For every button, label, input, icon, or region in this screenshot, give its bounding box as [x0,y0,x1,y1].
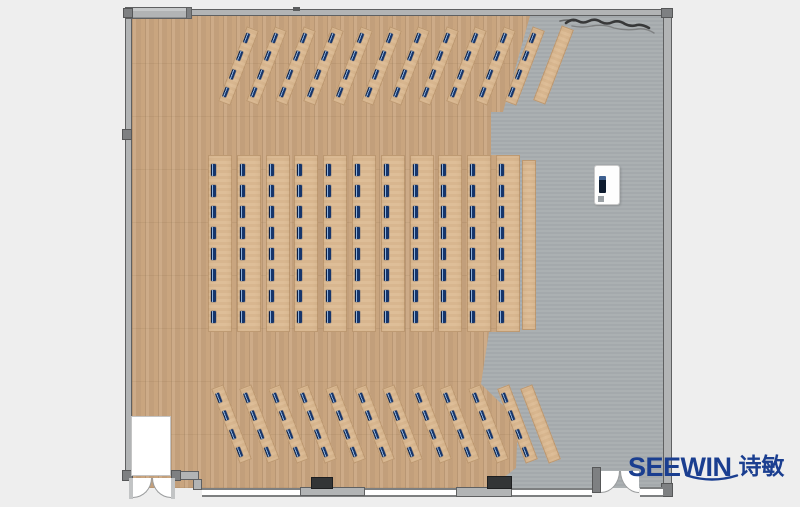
seat-marker [269,311,274,323]
seat-marker [257,69,264,80]
seat-marker [413,290,418,302]
seat-marker [471,33,478,44]
seat-marker [264,447,271,458]
seat-marker [321,51,328,62]
seat-marker [355,311,360,323]
seat-marker [222,410,229,421]
seat-marker [486,69,493,80]
seat-marker [528,33,535,44]
seat-marker [269,227,274,239]
seat-marker [415,392,422,403]
seat-marker [343,429,350,440]
desk-strip [496,155,520,332]
seat-marker [211,311,216,323]
desk-strip [237,155,261,332]
seat-marker [240,311,245,323]
seat-marker [243,392,250,403]
seat-marker [314,69,321,80]
seat-marker [413,185,418,197]
seat-marker [457,429,464,440]
seat-marker [350,447,357,458]
seat-marker [441,269,446,281]
seat-marker [429,429,436,440]
seat-marker [470,164,475,176]
seat-marker [269,248,274,260]
seat-marker [384,269,389,281]
seat-marker [228,429,235,440]
seat-marker [269,290,274,302]
equipment-screen [599,176,606,193]
seat-marker [293,51,300,62]
seat-marker [441,164,446,176]
seat-marker [269,185,274,197]
seat-marker [279,87,286,98]
seat-marker [486,429,493,440]
seat-marker [450,87,457,98]
seat-marker [269,269,274,281]
seat-marker [328,33,335,44]
seat-marker [400,69,407,80]
seat-marker [384,248,389,260]
seat-marker [400,429,407,440]
seat-marker [250,410,257,421]
seat-marker [222,87,229,98]
desk-layer [0,0,800,507]
seat-marker [414,33,421,44]
seat-marker [297,269,302,281]
brand-logo: SEEWIN诗敏 [628,447,793,489]
seat-marker [326,290,331,302]
seat-marker [508,87,515,98]
seat-marker [326,311,331,323]
seat-marker [413,248,418,260]
seat-marker [393,410,400,421]
seat-marker [358,392,365,403]
seat-marker [499,311,504,323]
seat-marker [499,185,504,197]
desk-strip [438,155,462,332]
seat-marker [297,290,302,302]
seat-marker [307,410,314,421]
seat-marker [365,87,372,98]
seat-marker [242,33,249,44]
seat-marker [229,69,236,80]
seat-marker [350,51,357,62]
seat-marker [499,227,504,239]
equipment-cart [594,165,620,205]
seat-marker [436,51,443,62]
seat-marker [297,227,302,239]
desk-strip [208,155,232,332]
seat-marker [407,51,414,62]
seat-marker [293,447,300,458]
seat-marker [515,69,522,80]
seat-marker [297,206,302,218]
seat-marker [297,185,302,197]
seat-marker [372,69,379,80]
seat-marker [264,51,271,62]
seat-marker [508,410,515,421]
desk-strip [294,155,318,332]
seat-marker [443,392,450,403]
seat-marker [326,227,331,239]
brand-logo-chinese: 诗敏 [739,453,785,479]
seat-marker [326,185,331,197]
seat-marker [326,269,331,281]
seat-marker [211,248,216,260]
seat-marker [493,447,500,458]
seat-marker [470,248,475,260]
seat-marker [441,185,446,197]
door-jamb-right [171,478,175,499]
seat-marker [307,87,314,98]
seat-marker [215,392,222,403]
scribble-mark [558,12,663,39]
seat-marker [343,69,350,80]
seat-marker [297,311,302,323]
seat-marker [240,206,245,218]
seat-marker [211,185,216,197]
seat-marker [300,33,307,44]
seat-marker [470,269,475,281]
seat-marker [384,164,389,176]
seat-marker [240,164,245,176]
seat-marker [470,227,475,239]
seat-marker [300,392,307,403]
seat-marker [235,447,242,458]
seat-marker [479,87,486,98]
seat-marker [378,447,385,458]
seat-marker [436,447,443,458]
seat-marker [240,269,245,281]
seat-marker [272,392,279,403]
seat-marker [413,206,418,218]
seat-marker [271,33,278,44]
seat-marker [464,447,471,458]
side-table [522,160,536,330]
seat-marker [470,290,475,302]
seat-marker [470,311,475,323]
seat-marker [464,51,471,62]
desk-strip [381,155,405,332]
seat-marker [413,311,418,323]
seat-marker [521,447,528,458]
seat-marker [441,290,446,302]
desk-strip [266,155,290,332]
seat-marker [493,51,500,62]
seat-marker [336,410,343,421]
seat-marker [479,410,486,421]
equipment-tray [598,196,604,202]
seat-marker [441,248,446,260]
seat-marker [443,33,450,44]
seat-marker [499,290,504,302]
seat-marker [393,87,400,98]
seat-marker [429,69,436,80]
seat-marker [240,185,245,197]
seat-marker [413,227,418,239]
seat-marker [329,392,336,403]
seat-marker [472,392,479,403]
desk-strip [323,155,347,332]
seat-marker [355,248,360,260]
seat-marker [326,248,331,260]
logo-swoosh-icon [685,474,739,484]
seat-marker [514,429,521,440]
seat-marker [211,227,216,239]
seat-marker [321,447,328,458]
seat-marker [211,269,216,281]
seat-marker [441,311,446,323]
entry-alcove [131,416,171,476]
seat-marker [355,185,360,197]
seat-marker [211,206,216,218]
seat-marker [314,429,321,440]
seat-marker [441,227,446,239]
seat-marker [384,227,389,239]
seat-marker [279,410,286,421]
seat-marker [286,69,293,80]
seat-marker [235,51,242,62]
seat-marker [413,164,418,176]
desk-strip [352,155,376,332]
desk-strip [410,155,434,332]
seat-marker [500,33,507,44]
seat-marker [365,410,372,421]
seat-marker [240,227,245,239]
seat-marker [211,290,216,302]
seat-marker [240,290,245,302]
seat-marker [384,206,389,218]
seat-marker [499,269,504,281]
seat-marker [413,269,418,281]
seat-marker [501,392,508,403]
seat-marker [326,164,331,176]
seat-marker [355,164,360,176]
seat-marker [499,164,504,176]
seat-marker [357,33,364,44]
seat-marker [211,164,216,176]
seat-marker [384,185,389,197]
seat-marker [422,410,429,421]
seat-marker [355,227,360,239]
seat-marker [257,429,264,440]
seat-marker [499,206,504,218]
seat-marker [384,290,389,302]
seat-marker [355,269,360,281]
seat-marker [470,206,475,218]
desk-strip [467,155,491,332]
seat-marker [269,164,274,176]
seat-marker [336,87,343,98]
seat-marker [326,206,331,218]
seat-marker [250,87,257,98]
seat-marker [385,33,392,44]
seat-marker [355,206,360,218]
seat-marker [371,429,378,440]
seat-marker [240,248,245,260]
seat-marker [286,429,293,440]
seat-marker [407,447,414,458]
seat-marker [378,51,385,62]
seat-marker [521,51,528,62]
floorplan-canvas: SEEWIN诗敏 [0,0,800,507]
seat-marker [386,392,393,403]
seat-marker [384,311,389,323]
seat-marker [450,410,457,421]
seat-marker [355,290,360,302]
seat-marker [297,248,302,260]
seat-marker [422,87,429,98]
seat-marker [441,206,446,218]
seat-marker [470,185,475,197]
seat-marker [297,164,302,176]
seat-marker [269,206,274,218]
seat-marker [457,69,464,80]
seat-marker [499,248,504,260]
